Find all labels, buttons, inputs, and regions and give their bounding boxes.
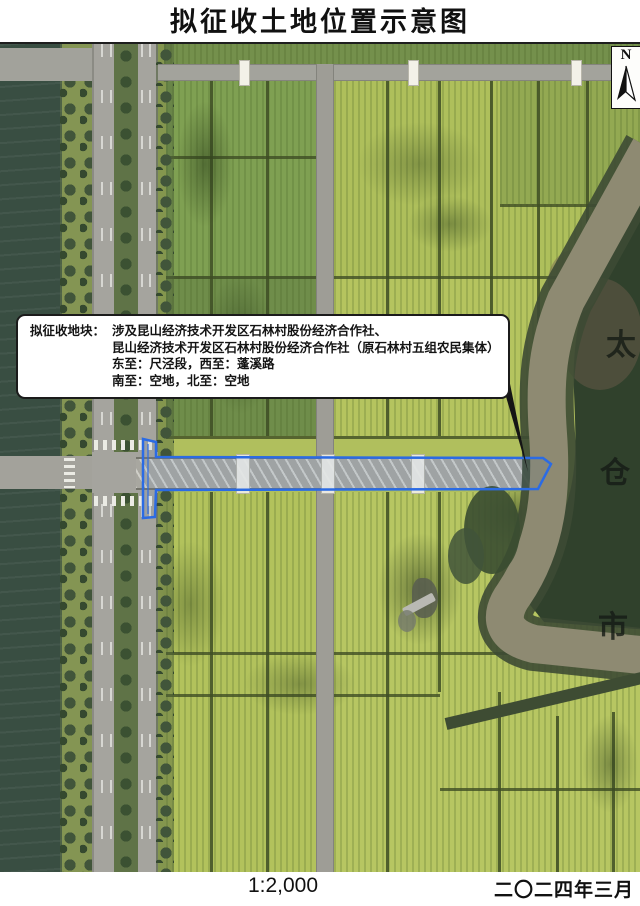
field-block-upper-left <box>166 64 316 276</box>
field-ditch-line <box>438 492 441 692</box>
culvert-marker <box>236 454 250 494</box>
field-strip-top <box>164 44 640 64</box>
field-ditch-line <box>166 694 440 697</box>
acquired-road-west-approach <box>0 456 92 489</box>
map-footer: 1:2,000 二〇二四年三月 <box>0 872 640 906</box>
field-ditch-line <box>210 492 213 872</box>
callout-line-east-west: 东至：尺泾段，西至：蓬溪路 <box>112 356 500 373</box>
callout-body: 涉及昆山经济技术开发区石林村股份经济合作社、 昆山经济技术开发区石林村股份经济合… <box>112 323 500 389</box>
top-road-west <box>0 48 92 81</box>
crosswalk <box>64 458 75 488</box>
field-ditch-line <box>266 492 269 872</box>
field-ditch-line <box>166 652 520 655</box>
callout-line-cooperatives-1: 涉及昆山经济技术开发区石林村股份经济合作社、 <box>112 323 500 340</box>
field-ditch-line <box>498 692 501 872</box>
field-ditch-line <box>612 712 615 872</box>
callout-line-cooperatives-2: 昆山经济技术开发区石林村股份经济合作社（原石林村五组农民集体） <box>112 340 500 357</box>
callout-label: 拟征收地块： <box>30 323 105 389</box>
satellite-map: 拟征收地块： 涉及昆山经济技术开发区石林村股份经济合作社、 昆山经济技术开发区石… <box>0 42 640 874</box>
land-acquisition-notice: 拟征收土地位置示意图 <box>0 0 640 906</box>
tower-base <box>398 610 416 632</box>
field-block-lower-left <box>166 492 316 872</box>
culvert-marker <box>571 60 582 86</box>
field-ditch-line <box>166 436 546 439</box>
adjacent-city-char-shi: 市 <box>598 602 628 646</box>
parcel-callout-box: 拟征收地块： 涉及昆山经济技术开发区石林村股份经济合作社、 昆山经济技术开发区石… <box>16 314 510 399</box>
north-label: N <box>621 47 632 64</box>
culvert-marker <box>408 60 419 86</box>
north-needle-icon <box>615 64 637 104</box>
field-ditch-line <box>440 788 640 791</box>
crosswalk <box>94 496 156 506</box>
field-ditch-line <box>556 716 559 872</box>
culvert-marker <box>239 60 250 86</box>
crosswalk <box>94 440 156 450</box>
field-ditch-line <box>500 204 640 207</box>
date-label: 二〇二四年三月 <box>494 875 634 902</box>
callout-line-south-north: 南至：空地，北至：空地 <box>112 373 500 390</box>
field-ditch-line <box>166 276 640 279</box>
culvert-marker <box>321 454 335 494</box>
field-ditch-line <box>537 64 540 356</box>
page-title: 拟征收土地位置示意图 <box>0 2 640 42</box>
field-ditch-line <box>386 492 389 872</box>
adjacent-city-char-cang: 仓 <box>600 448 630 492</box>
north-arrow: N <box>611 46 640 109</box>
top-farm-road <box>158 64 640 81</box>
acquired-road <box>136 457 548 490</box>
adjacent-city-char-tai: 太 <box>606 320 636 364</box>
scale-label: 1:2,000 <box>228 874 338 898</box>
field-ditch-line <box>166 156 316 159</box>
culvert-marker <box>411 454 425 494</box>
